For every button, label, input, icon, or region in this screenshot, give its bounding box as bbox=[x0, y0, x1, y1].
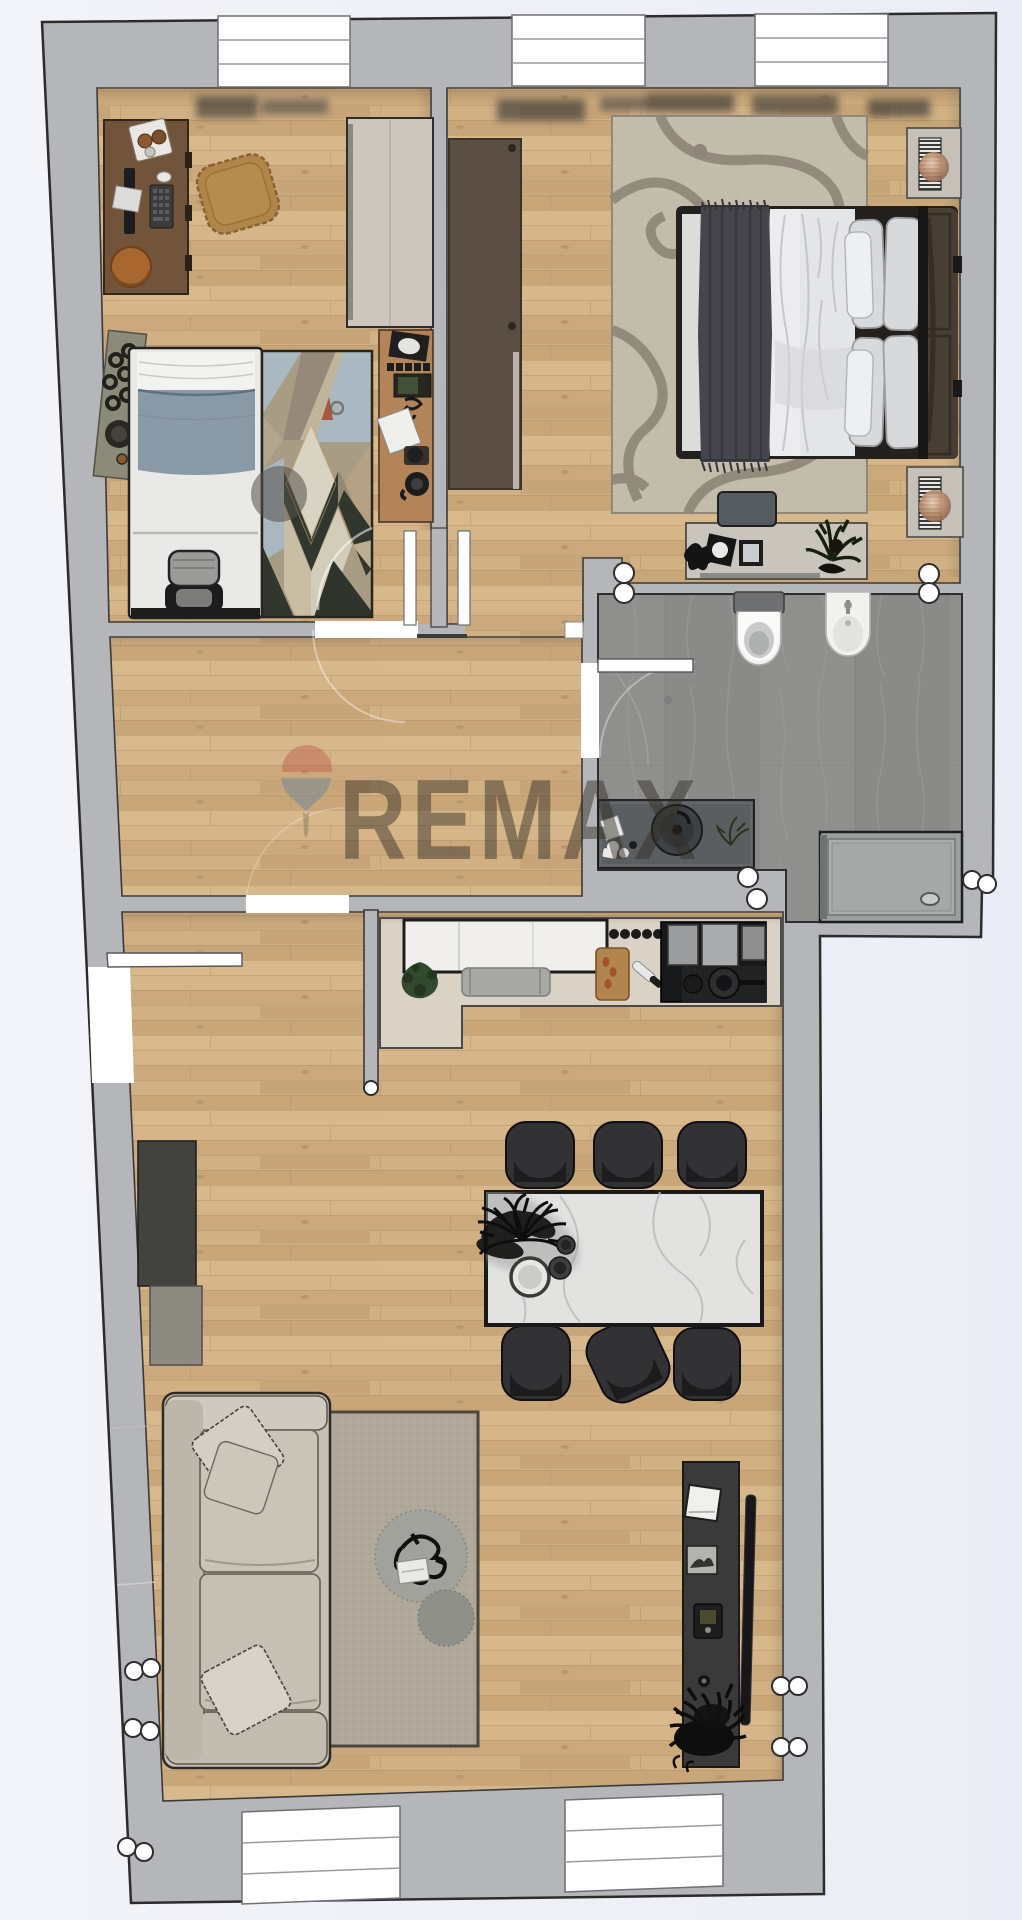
svg-text:REMAX: REMAX bbox=[339, 757, 701, 884]
